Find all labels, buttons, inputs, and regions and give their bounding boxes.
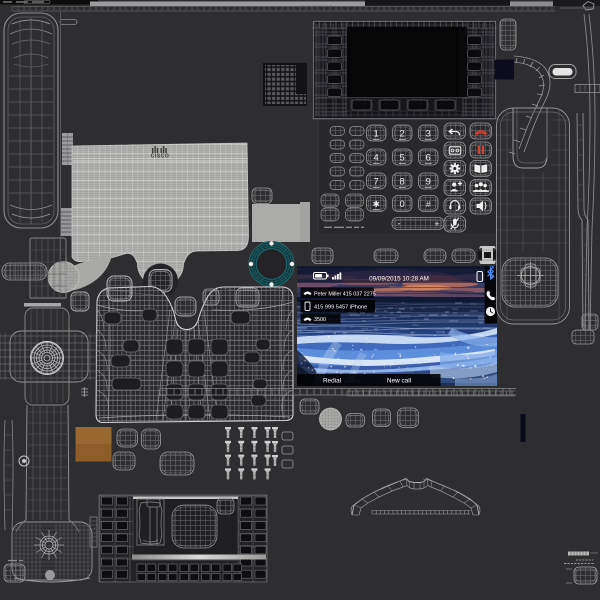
svg-text:0: 0	[400, 199, 405, 210]
svg-text:✱: ✱	[373, 199, 380, 209]
svg-text:Peter Miller 415 037 2275: Peter Miller 415 037 2275	[314, 292, 376, 298]
svg-text:09/09/2015 10:28 AM: 09/09/2015 10:28 AM	[369, 276, 429, 283]
svg-text:5: 5	[400, 152, 405, 163]
svg-text:1: 1	[374, 128, 379, 139]
svg-text:CISCO: CISCO	[151, 154, 169, 160]
svg-text:7: 7	[374, 176, 379, 187]
svg-text:-: -	[398, 219, 401, 229]
svg-text:9: 9	[426, 176, 431, 187]
svg-text:3500: 3500	[314, 317, 326, 323]
svg-text:6: 6	[426, 152, 431, 163]
svg-text:Redial: Redial	[323, 378, 341, 385]
svg-text:+: +	[434, 219, 439, 229]
svg-text:New call: New call	[387, 378, 411, 385]
svg-text:4: 4	[374, 152, 379, 163]
svg-text:3: 3	[426, 128, 431, 139]
svg-text:2: 2	[400, 128, 405, 139]
svg-text:8: 8	[400, 176, 405, 187]
svg-text:415 999 5457 iPhone: 415 999 5457 iPhone	[314, 305, 367, 311]
svg-text:#: #	[426, 199, 431, 209]
